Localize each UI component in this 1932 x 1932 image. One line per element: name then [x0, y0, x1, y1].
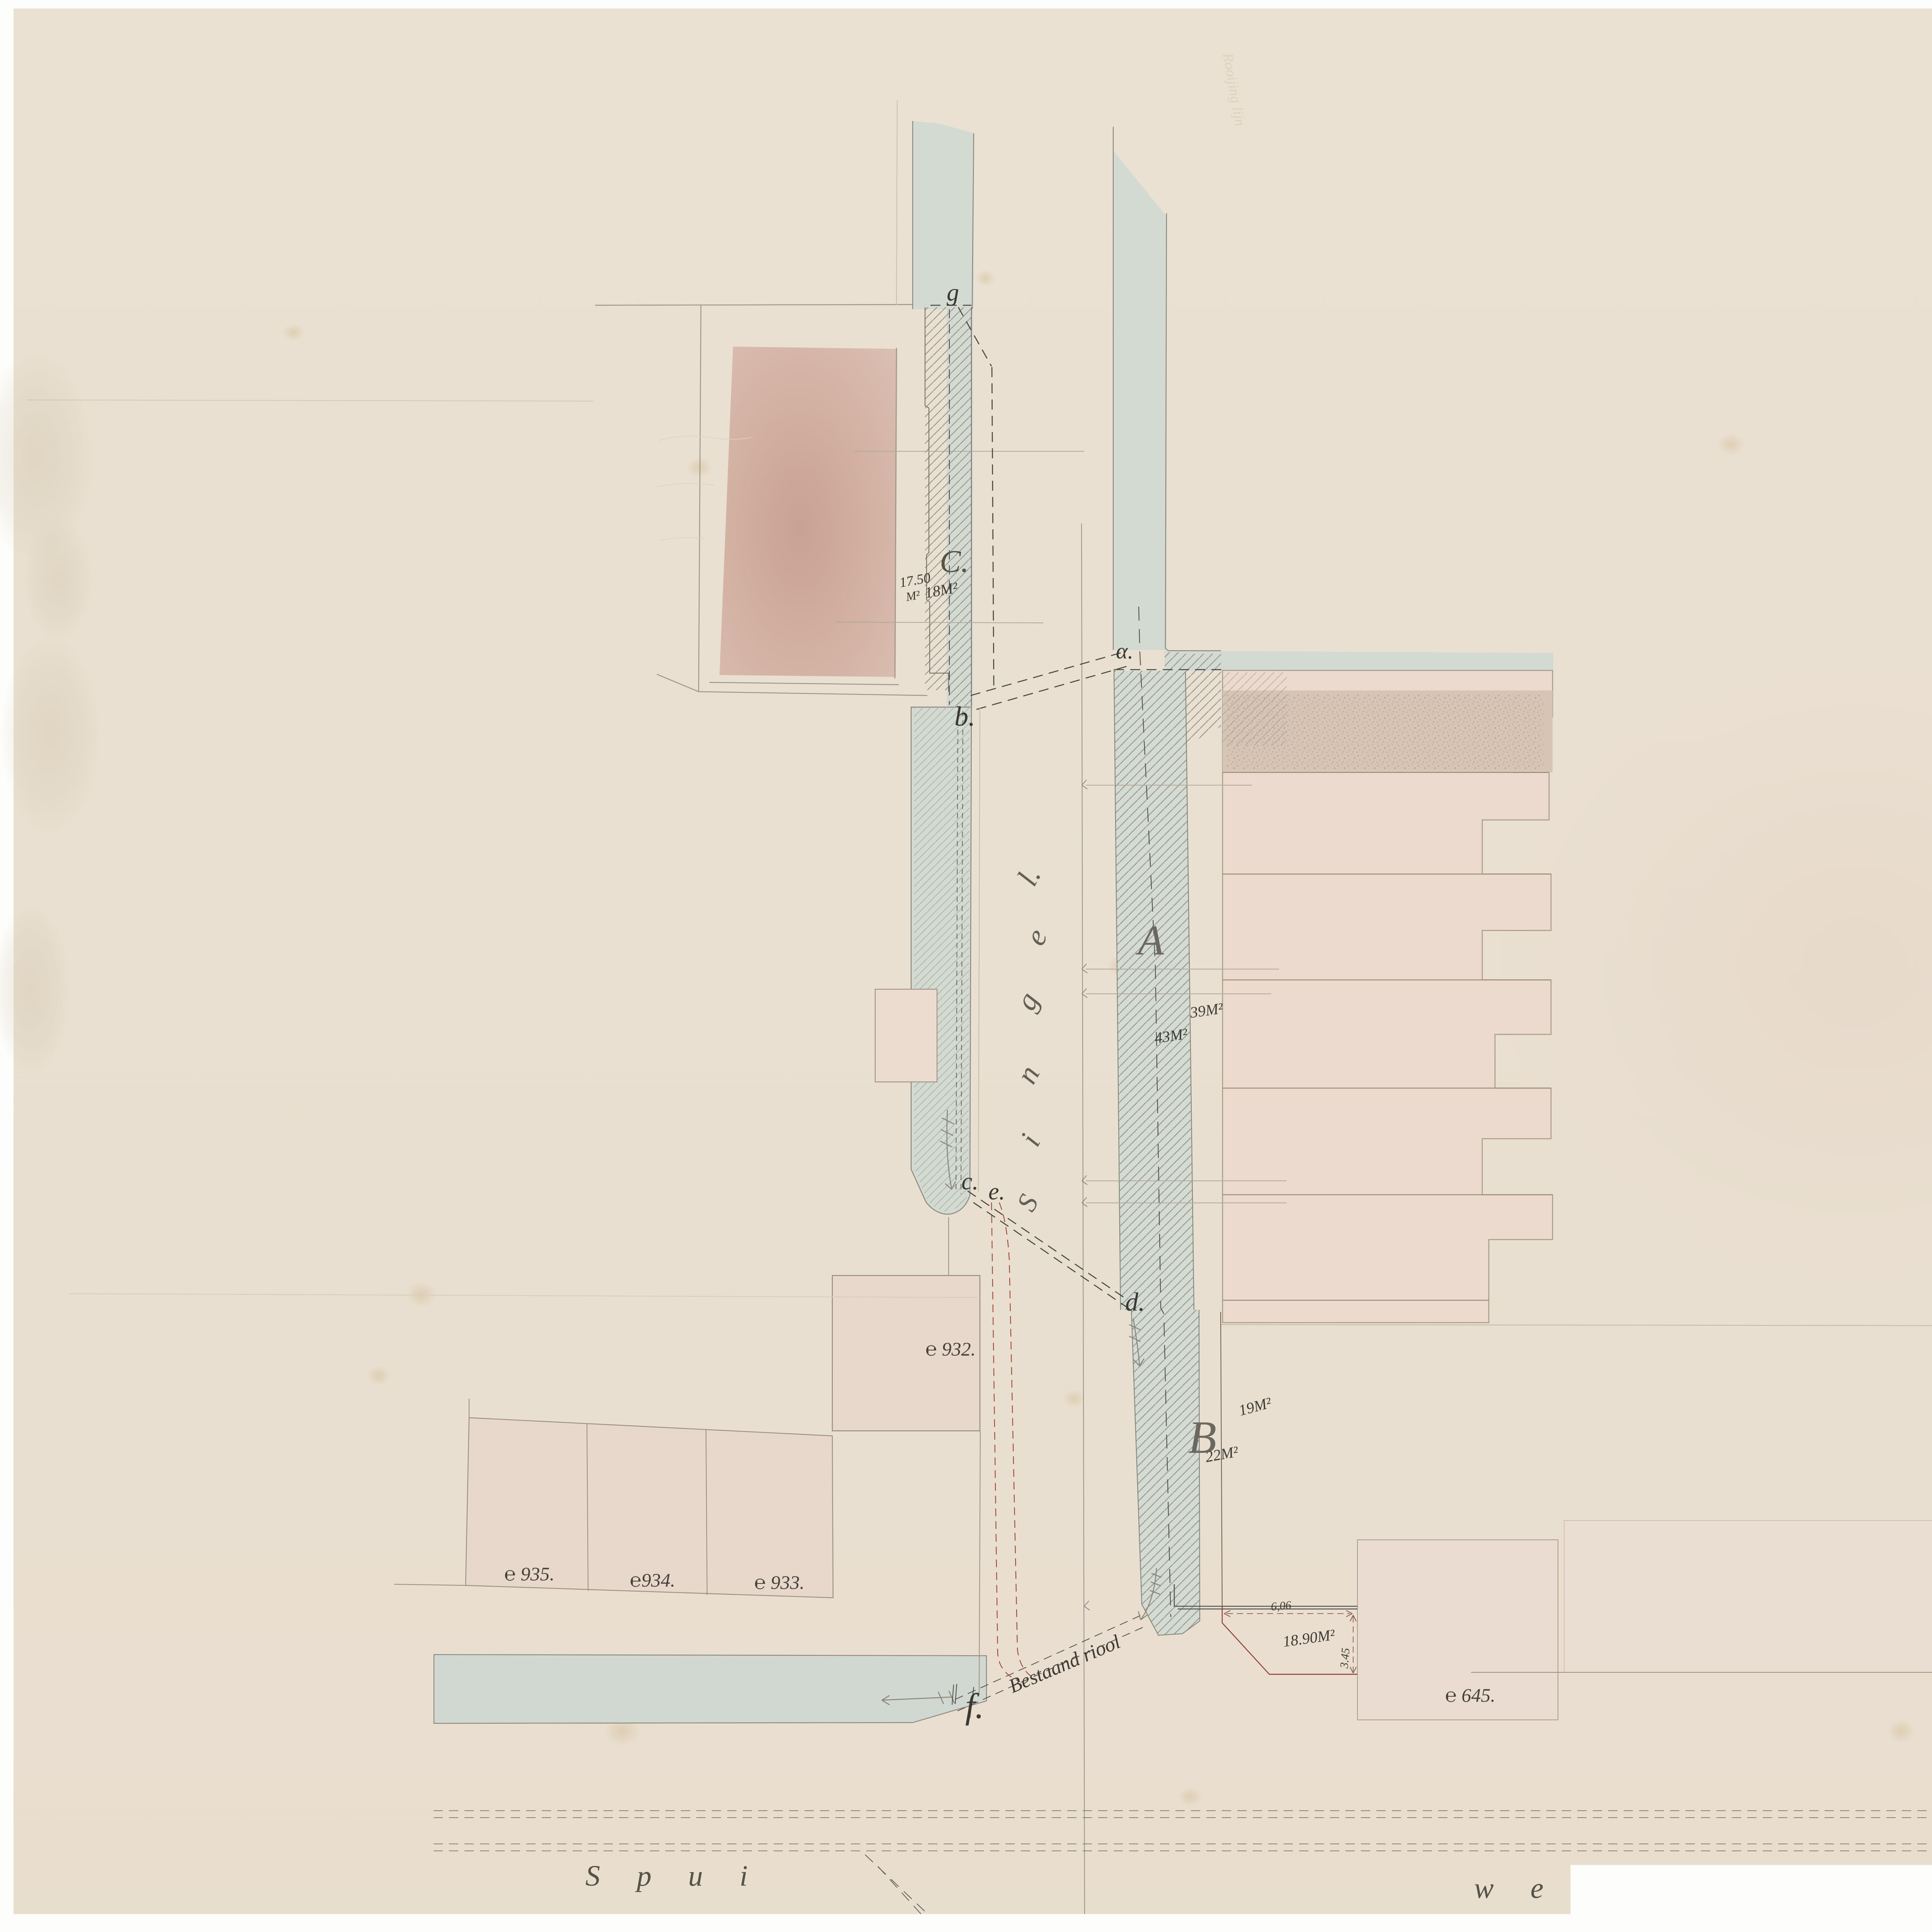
- svg-text:℮ 935.: ℮ 935.: [504, 1563, 554, 1585]
- svg-text:3.45: 3.45: [1338, 1647, 1352, 1669]
- svg-text:℮934.: ℮934.: [630, 1569, 675, 1591]
- svg-text:M²: M²: [904, 588, 921, 604]
- svg-text:d.: d.: [1125, 1287, 1145, 1316]
- svg-text:w e g.: w e g.: [1474, 1872, 1631, 1905]
- svg-text:℮ 933.: ℮ 933.: [754, 1571, 804, 1593]
- svg-text:f.: f.: [965, 1686, 984, 1726]
- svg-text:α.: α.: [1116, 638, 1133, 663]
- svg-text:6,06: 6,06: [1270, 1599, 1292, 1613]
- svg-text:S p u i: S p u i: [585, 1860, 762, 1892]
- svg-text:c.: c.: [961, 1167, 978, 1195]
- svg-text:b.: b.: [954, 701, 975, 732]
- svg-text:℮ 932.: ℮ 932.: [925, 1338, 976, 1360]
- svg-text:g: g: [947, 279, 959, 306]
- svg-text:A: A: [1135, 917, 1164, 964]
- svg-text:℮ 645.: ℮ 645.: [1445, 1684, 1495, 1706]
- svg-text:e.: e.: [988, 1179, 1005, 1205]
- svg-text:C.: C.: [940, 544, 969, 579]
